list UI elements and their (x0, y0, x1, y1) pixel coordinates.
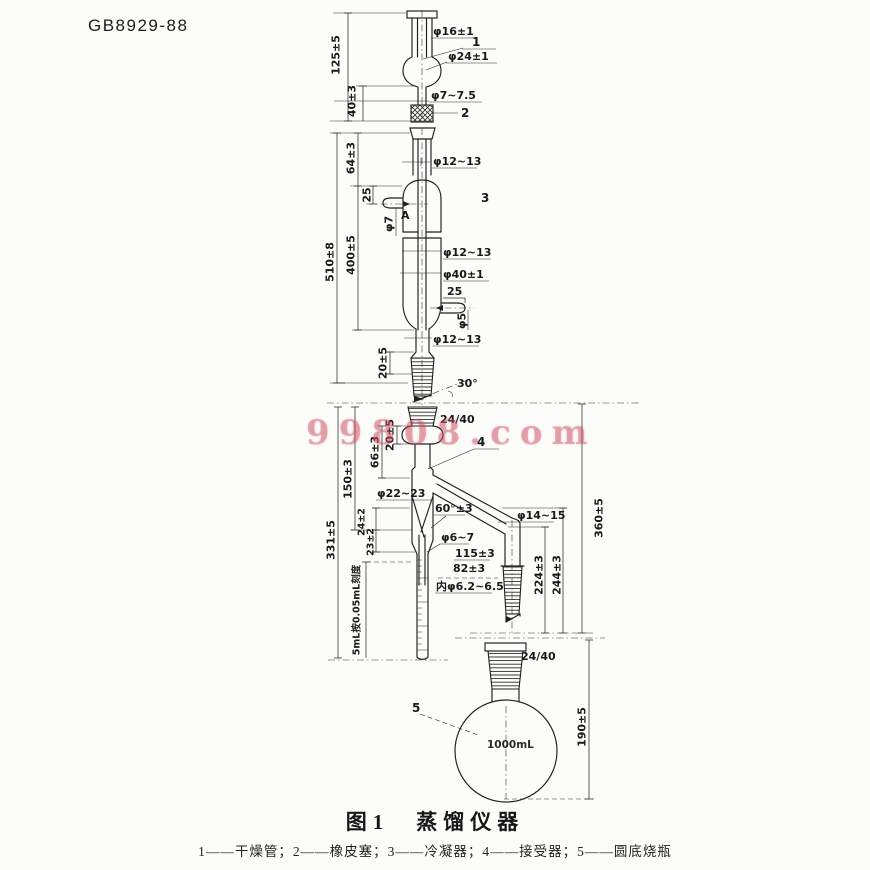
dim-recv-total-length: 331±5 (325, 520, 338, 560)
dim-stem-od: φ7~7.5 (431, 89, 476, 102)
label-graduation-note: 5mL按0.05mL刻度 (351, 564, 363, 655)
dim-arm-bottom-od: φ5 (456, 313, 469, 329)
condenser (383, 128, 465, 405)
part-number-flask: 5 (412, 701, 420, 715)
part-number-receiver: 4 (477, 435, 485, 449)
dim-drip-tube-od: φ6~7 (441, 531, 474, 544)
rubber-stopper (411, 105, 433, 122)
label-joint-bottom: 24/40 (521, 650, 556, 663)
dim-inner-tube-od-bottom: φ12~13 (433, 333, 481, 346)
dimension-lines (327, 13, 640, 799)
dim-tip-angle: 30° (457, 377, 478, 390)
dim-arm-top-od: φ7 (383, 216, 396, 232)
dim-cond-top-length: 64±3 (345, 142, 358, 174)
dim-bulb-od: φ24±1 (448, 50, 489, 63)
dim-recv-upper-length: 150±3 (342, 459, 355, 499)
dim-inner-tube-od-mid: φ12~13 (443, 246, 491, 259)
dim-branch-height-1: 224±3 (533, 555, 546, 595)
distillation-apparatus-diagram: 125±5 40±3 φ16±1 1 φ24±1 φ7~7.5 2 64±3 5… (0, 0, 870, 870)
dim-cone-angle: 60°±3 (435, 502, 473, 515)
dim-arm-top-length: 25 (361, 187, 374, 202)
dim-joint-stub-length: 20±5 (377, 347, 390, 379)
dim-inner-tube-od-top: φ12~13 (433, 155, 481, 168)
dim-jacket-od: φ40±1 (443, 268, 484, 281)
part-number-condenser: 3 (481, 191, 489, 205)
dim-top-tube-od: φ16±1 (433, 25, 474, 38)
label-point-a: A (401, 209, 410, 222)
dim-recv-tube-od: φ22~23 (377, 487, 425, 500)
figure-caption: 图1 蒸馏仪器 (0, 806, 870, 836)
dim-recv-height: 360±5 (593, 498, 606, 538)
dim-stem-height: 40±3 (346, 85, 359, 117)
dim-branch-height-2: 244±3 (551, 555, 564, 595)
dim-top-height: 125±5 (330, 35, 343, 75)
dim-branch-od: φ14~15 (517, 509, 565, 522)
dim-arm-bottom-length: 25 (447, 285, 462, 298)
label-flask-volume: 1000mL (487, 739, 534, 751)
dim-branch-length: 115±3 (455, 547, 495, 560)
dim-recv-neck-length: 66±3 (369, 436, 382, 468)
dim-branch-drop: 82±3 (453, 562, 485, 575)
dim-segment-23: 23±2 (366, 528, 377, 556)
dim-flask-height: 190±5 (576, 707, 589, 747)
figure-legend: 1——干燥管；2——橡皮塞；3——冷凝器；4——接受器；5——圆底烧瓶 (0, 840, 870, 860)
dim-recv-bulb-length: 20±5 (384, 419, 397, 451)
dim-cond-total-length: 510±8 (324, 242, 337, 282)
label-joint-top: 24/40 (440, 413, 475, 426)
dim-jacket-length: 400±5 (345, 235, 358, 275)
part-number-drying-tube: 1 (472, 35, 480, 49)
part-number-stopper: 2 (461, 106, 469, 120)
dim-grad-tube-id: 内φ6.2~6.5 (436, 579, 504, 593)
round-bottom-flask (455, 643, 557, 802)
